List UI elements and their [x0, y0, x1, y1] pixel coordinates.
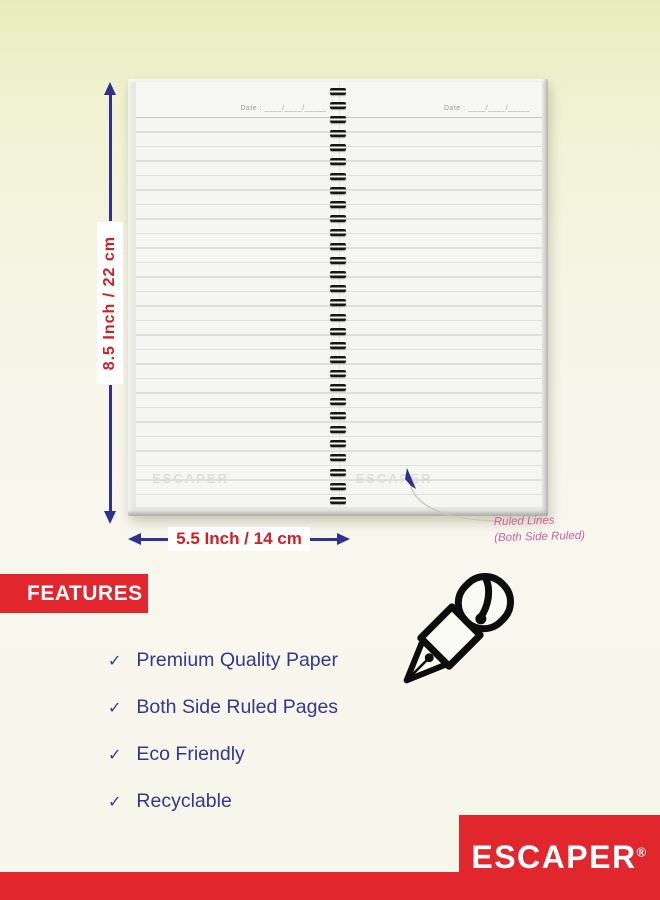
left-page-date-row: Date : ____/____/_____	[136, 82, 339, 118]
features-list: ✓ Premium Quality Paper ✓ Both Side Rule…	[108, 637, 338, 825]
spiral-coil	[330, 88, 346, 95]
spiral-coil	[330, 271, 346, 278]
feature-item: ✓ Eco Friendly	[108, 731, 338, 778]
spiral-coil	[330, 299, 346, 306]
page-watermark: ESCAPER	[152, 471, 229, 486]
annotation-line-2: (Both Side Ruled)	[494, 528, 585, 546]
spiral-coil	[330, 454, 346, 461]
feature-item: ✓ Recyclable	[108, 778, 338, 825]
spiral-coil	[330, 370, 346, 377]
height-label: 8.5 Inch / 22 cm	[101, 236, 119, 370]
right-page-ruled-area: ESCAPER	[340, 118, 543, 507]
spiral-coil	[330, 102, 346, 109]
arrowhead-right-icon	[337, 533, 350, 545]
cursor-arrow-icon	[405, 468, 416, 489]
spiral-coil	[330, 440, 346, 447]
width-label: 5.5 Inch / 14 cm	[168, 527, 310, 551]
spiral-coil	[330, 356, 346, 363]
date-field: Date : ____/____/_____	[240, 105, 326, 112]
checkmark-icon: ✓	[108, 698, 121, 718]
arrowhead-up-icon	[104, 82, 116, 95]
spiral-coil	[330, 483, 346, 490]
dimension-line-horizontal	[310, 538, 337, 541]
width-dimension: 5.5 Inch / 14 cm	[128, 526, 350, 552]
spiral-coil	[330, 328, 346, 335]
spiral-coil	[330, 412, 346, 419]
spiral-coil	[330, 384, 346, 391]
feature-label: Recyclable	[136, 790, 231, 813]
features-heading: FEATURES	[0, 574, 148, 613]
date-field: Date : ____/____/_____	[444, 105, 530, 112]
right-page-date-row: Date : ____/____/_____	[340, 82, 543, 118]
spiral-coil	[330, 285, 346, 292]
brand-logo: ESCAPER®	[471, 839, 647, 876]
notebook-left-page: Date : ____/____/_____ ESCAPER	[136, 82, 340, 507]
left-page-ruled-area: ESCAPER	[136, 118, 339, 507]
brand-logo-block: ESCAPER®	[459, 815, 660, 900]
checkmark-icon: ✓	[108, 745, 121, 765]
spiral-coil	[330, 158, 346, 165]
spiral-coil	[330, 398, 346, 405]
feature-item: ✓ Premium Quality Paper	[108, 637, 338, 684]
checkmark-icon: ✓	[108, 651, 121, 671]
dimension-line-horizontal	[141, 538, 168, 541]
arrowhead-left-icon	[128, 533, 141, 545]
notebook: Date : ____/____/_____ ESCAPER Date : __…	[128, 79, 548, 516]
height-label-box: 8.5 Inch / 22 cm	[97, 222, 123, 384]
height-dimension: 8.5 Inch / 22 cm	[95, 82, 125, 524]
dimension-line-vertical	[109, 95, 112, 221]
spiral-coil	[330, 243, 346, 250]
brand-name: ESCAPER	[471, 839, 636, 875]
spiral-coil	[330, 342, 346, 349]
feature-label: Both Side Ruled Pages	[136, 696, 338, 719]
spiral-coil	[330, 130, 346, 137]
spiral-coil	[330, 173, 346, 180]
spiral-coil	[330, 426, 346, 433]
spiral-coil	[330, 144, 346, 151]
spiral-coil	[330, 116, 346, 123]
product-infographic: Date : ____/____/_____ ESCAPER Date : __…	[0, 0, 660, 900]
checkmark-icon: ✓	[108, 792, 121, 812]
arrowhead-down-icon	[104, 511, 116, 524]
notebook-right-page: Date : ____/____/_____ ESCAPER	[340, 82, 543, 507]
fountain-pen-icon	[378, 558, 530, 708]
spiral-coil	[330, 201, 346, 208]
spiral-coil	[330, 314, 346, 321]
spiral-binding	[330, 88, 346, 504]
feature-label: Premium Quality Paper	[136, 649, 338, 672]
feature-label: Eco Friendly	[136, 743, 244, 766]
feature-item: ✓ Both Side Ruled Pages	[108, 684, 338, 731]
spiral-coil	[330, 497, 346, 504]
registered-mark: ®	[637, 844, 648, 859]
spiral-coil	[330, 215, 346, 222]
ruled-lines-annotation: Ruled Lines (Both Side Ruled)	[494, 512, 586, 547]
dimension-line-vertical	[109, 385, 112, 511]
spiral-coil	[330, 229, 346, 236]
spiral-coil	[330, 187, 346, 194]
spiral-coil	[330, 257, 346, 264]
spiral-coil	[330, 469, 346, 476]
